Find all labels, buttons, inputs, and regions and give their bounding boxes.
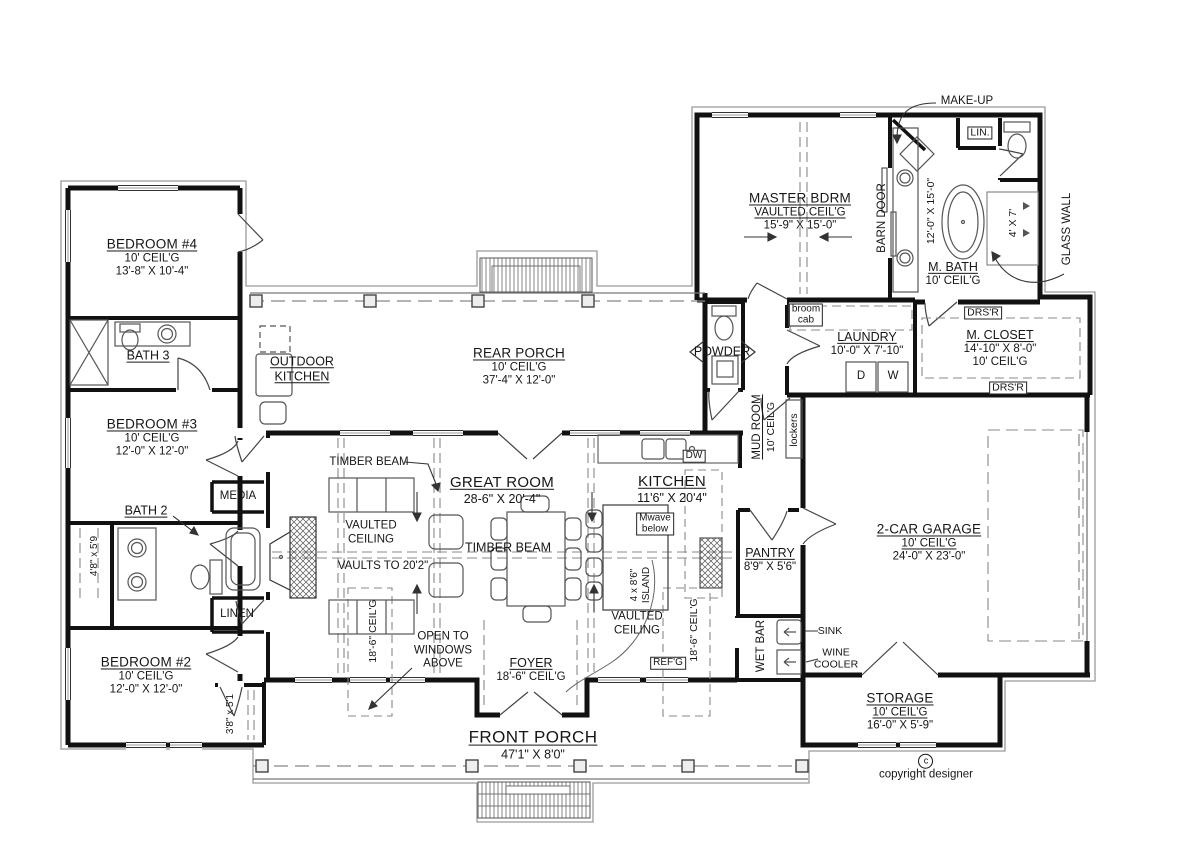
room-label-bath2: BATH 2 — [125, 504, 168, 519]
room-label-bedroom4: BEDROOM #4 10' CEIL'G 13'-8" X 10'-4" — [107, 236, 198, 279]
dishwasher-label: DW — [683, 450, 706, 463]
room-label-wetbar: WET BAR — [755, 620, 769, 672]
room-label-outdoor-kitchen: OUTDOOR KITCHEN — [270, 354, 334, 384]
room-label-kitchen: KITCHEN 11'6" X 20'4" — [637, 473, 707, 505]
room-label-linen: LINEN — [220, 608, 254, 622]
closet-dims-label: 4'8" x 5'9 — [89, 536, 101, 576]
makeup-label: MAKE-UP — [941, 95, 993, 109]
broom-cab-label: broom cab — [789, 304, 823, 327]
copyright-icon: c — [918, 754, 933, 769]
room-label-garage: 2-CAR GARAGE 10' CEIL'G 24'-0" X 23'-0" — [877, 521, 981, 564]
room-label-bedroom2: BEDROOM #2 10' CEIL'G 12'-0" X 12'-0" — [101, 654, 192, 697]
dryer-label: D — [857, 370, 865, 384]
wine-cooler-label: WINE COOLER — [814, 647, 858, 672]
room-label-powder: POWDER — [694, 345, 750, 360]
glass-wall-label: GLASS WALL — [1061, 193, 1075, 265]
fridge-label: REF'G — [650, 657, 686, 670]
room-label-mcloset: M. CLOSET 14'-10" X 8'-0" 10' CEIL'G — [964, 328, 1037, 370]
copyright-note: ccopyright designer — [879, 754, 973, 783]
ceiling-186-label-left: 18'-6" CEIL'G — [367, 599, 379, 662]
room-label-storage: STORAGE 10' CEIL'G 16'-0" X 5'-9" — [866, 690, 933, 733]
timber-beam-label-2: TIMBER BEAM — [465, 541, 551, 556]
microwave-label: Mwave below — [636, 513, 674, 536]
vaulted-ceiling-label-kitchen: VAULTED CEILING — [611, 610, 662, 637]
linen-closet-label: LIN. — [967, 126, 992, 139]
room-label-greatroom: GREAT ROOM 28-6" X 20'-4" — [450, 474, 554, 506]
floor-plan-page: BEDROOM #4 10' CEIL'G 13'-8" X 10'-4" BA… — [0, 0, 1200, 860]
room-label-mudroom: MUD ROOM 10' CEIL'G — [751, 394, 777, 459]
room-label-media: MEDIA — [220, 490, 256, 504]
room-label-front-porch: FRONT PORCH 47'1" X 8'0" — [469, 728, 598, 763]
fixtures — [70, 122, 1038, 674]
mbath-dims-label: 12'-0" X 15'-0" — [925, 178, 937, 244]
island-label: 4 x 8'6" ISLAND — [629, 567, 653, 603]
timber-beam-label-1: TIMBER BEAM — [329, 456, 408, 470]
dresser-label-bottom: DRS'R — [989, 381, 1027, 394]
room-label-bath3: BATH 3 — [127, 349, 170, 364]
lockers-label: lockers — [788, 413, 800, 446]
room-label-laundry: LAUNDRY 10'-0" X 7'-10" — [831, 330, 904, 358]
dresser-label-top: DRS'R — [964, 306, 1002, 319]
vaulted-ceiling-label-great: VAULTED CEILING — [345, 519, 396, 546]
barn-door-label: BARN DOOR — [876, 183, 890, 253]
vaults-to-label: VAULTS TO 20'2" — [338, 560, 428, 574]
room-label-rear-porch: REAR PORCH 10' CEIL'G 37'-4" X 12'-0" — [473, 345, 565, 388]
open-to-windows-label: OPEN TO WINDOWS ABOVE — [414, 631, 472, 672]
room-label-master: MASTER BDRM VAULTED CEIL'G 15'-9" X 15'-… — [749, 190, 851, 233]
closet2-dims-label: 3'8" x 5'1 — [225, 694, 237, 734]
room-label-pantry: PANTRY 8'9" X 5'6" — [744, 546, 796, 574]
room-label-foyer: FOYER 18'-6" CEIL'G — [496, 656, 565, 684]
ceiling-186-label-right: 18'-6" CEIL'G — [688, 598, 700, 661]
shower-dims-label: 4' X 7' — [1007, 209, 1019, 238]
room-label-mbath: M. BATH 10' CEIL'G — [926, 260, 981, 288]
washer-label: W — [888, 370, 899, 384]
room-label-bedroom3: BEDROOM #3 10' CEIL'G 12'-0" X 12'-0" — [107, 416, 198, 459]
sink-label: SINK — [818, 625, 843, 637]
